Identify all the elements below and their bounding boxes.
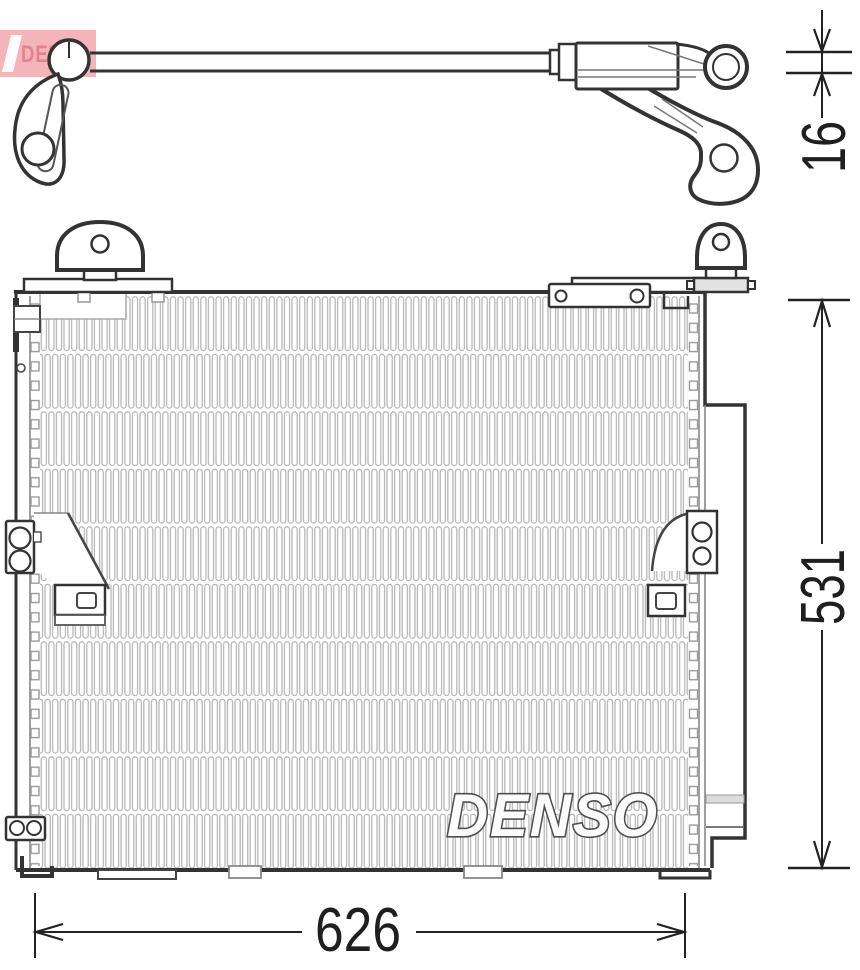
pipe-eyelet [705, 46, 747, 88]
mount-hole [92, 236, 109, 253]
tube-ends-right [688, 300, 698, 866]
mount-right [687, 224, 755, 292]
condenser-body: DENSO [6, 222, 755, 879]
dimension-pipe-height: 16 [786, 10, 859, 173]
bracket-hole [711, 145, 738, 172]
bracket-hole [22, 133, 54, 165]
bolt-hole [631, 290, 644, 303]
pipe-assembly [15, 40, 758, 204]
dim-value-condenser-width: 626 [315, 896, 401, 965]
dim-value-condenser-height: 531 [789, 549, 858, 625]
port-hole [10, 551, 31, 572]
pipe-right-fitting [550, 43, 711, 89]
part-drawing: DENSO [0, 0, 860, 970]
top-tab [152, 292, 164, 302]
pipe-tube [90, 53, 556, 71]
mount-hole [713, 234, 729, 250]
dimension-condenser-width: 626 [35, 893, 685, 965]
small-hole [17, 364, 25, 372]
bottom-tab [464, 866, 502, 878]
bottom-notch [98, 870, 176, 879]
bottom-tab [229, 866, 261, 878]
drier-band [706, 795, 744, 803]
dimension-condenser-height: 531 [788, 300, 858, 868]
port-hole [10, 528, 31, 549]
pipe-left-bracket [15, 74, 70, 184]
top-tab [78, 292, 90, 302]
pipe-lower-bracket [598, 87, 758, 204]
dim-value-pipe-height: 16 [790, 121, 859, 173]
port-hole [694, 548, 711, 565]
watermark-text: DENSO [447, 782, 659, 849]
diagram-canvas: DENSO [0, 0, 860, 970]
port-hole [693, 523, 712, 542]
mount-left [24, 222, 172, 292]
tube-ends-left [30, 300, 40, 866]
receiver-drier [705, 292, 745, 868]
bolt-hole [556, 291, 567, 302]
